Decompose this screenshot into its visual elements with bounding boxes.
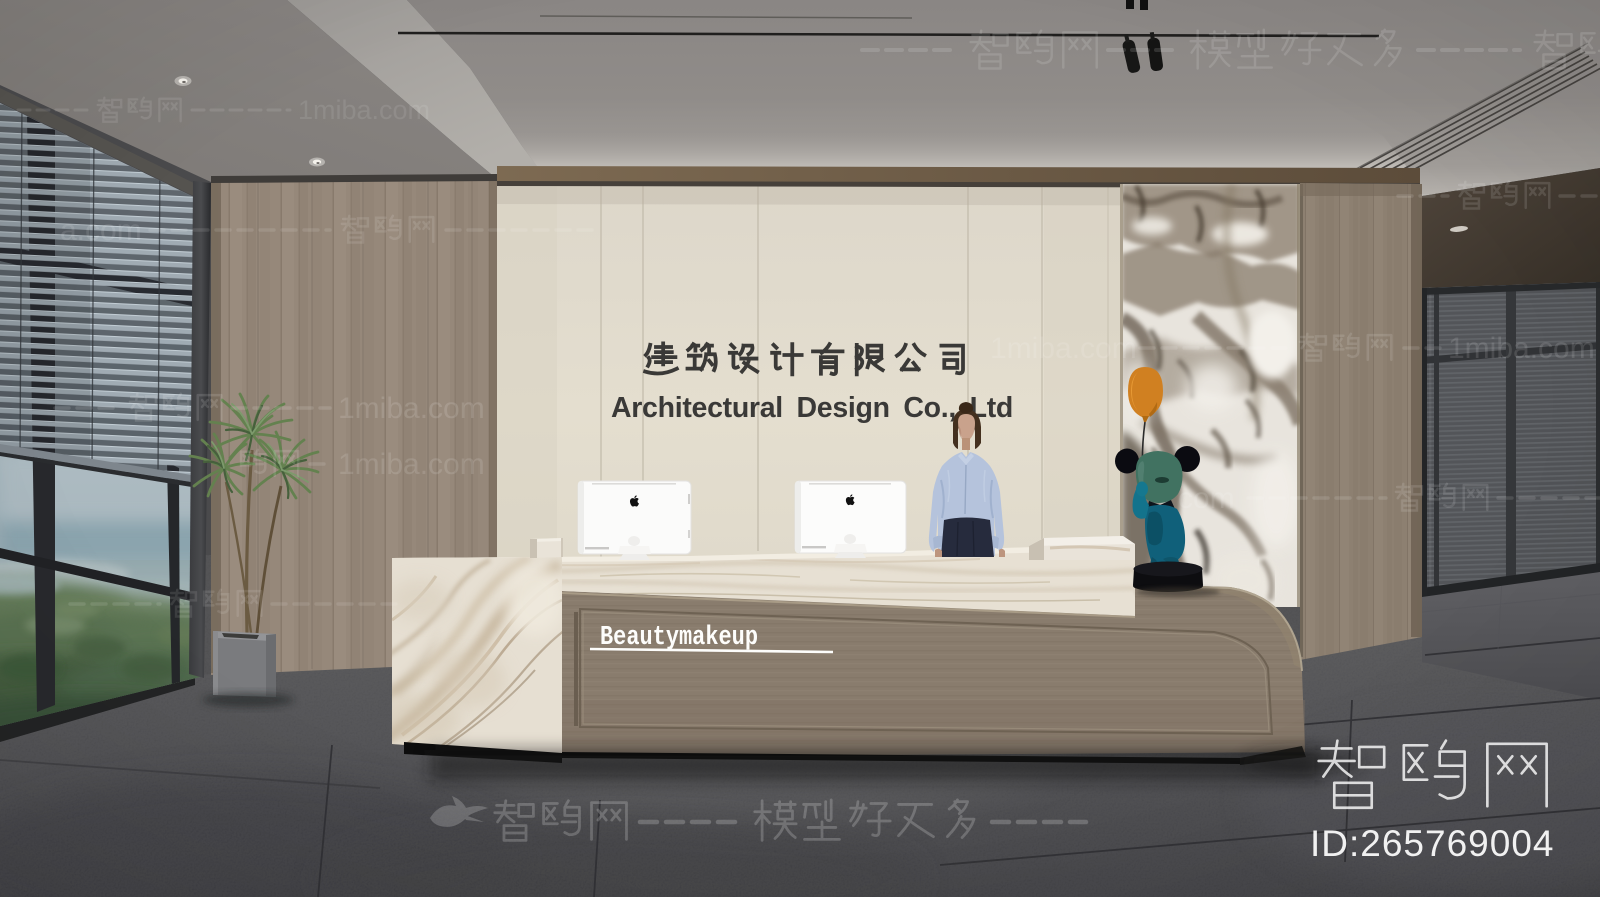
svg-text:1miba.com: 1miba.com xyxy=(990,332,1137,365)
svg-text:com: com xyxy=(1178,482,1235,515)
svg-text:1miba.com: 1miba.com xyxy=(338,392,485,425)
svg-text:1miba.com: 1miba.com xyxy=(338,448,485,481)
svg-text:a.com: a.com xyxy=(60,214,142,247)
svg-text:ID:265769004: ID:265769004 xyxy=(1310,823,1554,864)
svg-text:1miba.com: 1miba.com xyxy=(1448,332,1595,365)
svg-text:1miba.com: 1miba.com xyxy=(298,95,430,125)
